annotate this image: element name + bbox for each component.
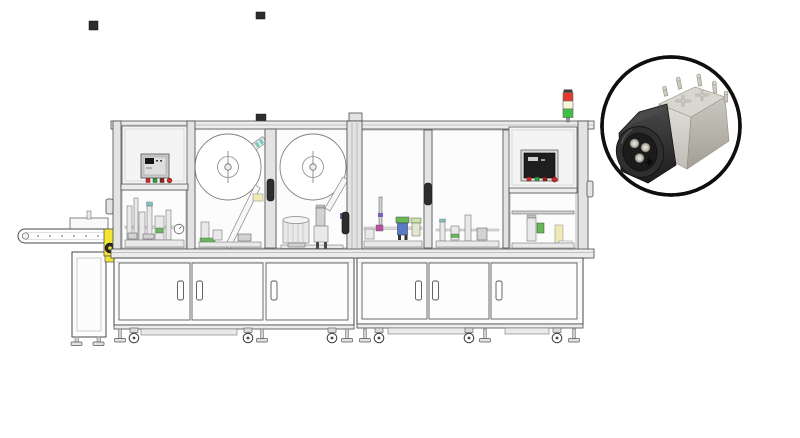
post-module-joint: [347, 121, 362, 258]
lower-cabinets: [114, 258, 583, 325]
door-handle: [178, 281, 184, 300]
caster-wheel: [464, 328, 474, 343]
stack-light-red: [563, 93, 573, 102]
hmi-left-button-1: [146, 179, 150, 183]
hmi-left-button-3: [160, 179, 164, 183]
leveling-foot: [257, 329, 268, 342]
hmi-right-button-4: [552, 177, 557, 182]
caster-wheel: [129, 328, 139, 343]
hmi-panel-left: [122, 126, 187, 184]
caster-wheel: [243, 328, 253, 343]
cabinet-door: [266, 263, 348, 320]
leveling-foot: [480, 329, 491, 342]
caster-wheel: [327, 328, 337, 343]
stack-light-yellow: [563, 101, 573, 109]
right-side-hinge: [587, 181, 593, 197]
outfeed-conveyor: [18, 211, 117, 346]
stack-light-cap: [564, 90, 573, 93]
conveyor-feet: [71, 337, 104, 346]
window-handle-3: [425, 183, 432, 205]
machine-base: [114, 324, 583, 343]
table-beam: [111, 249, 594, 258]
machine-illustration: [0, 0, 800, 438]
conveyor-end-roller: [22, 233, 28, 239]
small-component: [256, 12, 265, 19]
hmi-right-button-3: [543, 177, 547, 181]
door-handle: [271, 281, 277, 300]
gripper-unit-2: [411, 218, 421, 236]
conveyor-mount-plate: [70, 218, 108, 230]
post-5: [503, 130, 509, 248]
caster-wheel: [374, 328, 384, 343]
leveling-foot: [115, 329, 126, 342]
material-reel-1: [195, 134, 261, 200]
leveling-foot: [360, 329, 371, 342]
leveling-foot: [569, 329, 580, 342]
caster-wheel: [552, 328, 562, 343]
window-handle-2: [342, 212, 349, 234]
hmi-left-button-2: [153, 179, 157, 183]
cabinet-door: [491, 263, 577, 319]
hmi-right-button-2: [535, 177, 539, 181]
post-right: [578, 121, 588, 258]
door-handle: [433, 281, 439, 300]
conveyor-belt: [18, 229, 117, 243]
screenshot-root: [0, 0, 800, 438]
window-right-lower: [510, 193, 576, 248]
small-component: [89, 21, 98, 30]
left-side-hinge: [106, 199, 113, 214]
door-handle: [496, 281, 502, 300]
conveyor-sensor: [87, 211, 91, 219]
bowl-feeder: [283, 217, 309, 248]
window-handle-1: [267, 179, 274, 201]
hmi-panel-right: [509, 127, 577, 188]
hmi-right-screen: [524, 153, 555, 178]
product-inset: [602, 57, 740, 195]
stack-light: [563, 90, 573, 123]
hmi-left-button-4: [167, 178, 172, 183]
door-handle: [416, 281, 422, 300]
leveling-foot: [342, 329, 353, 342]
roof-junction-tab: [349, 113, 362, 121]
hmi-right-button-1: [527, 177, 531, 181]
door-handle: [197, 281, 203, 300]
stack-light-pole: [567, 118, 570, 123]
roof-fitting: [256, 114, 266, 121]
machine-diagram: [18, 12, 594, 346]
post-left: [113, 121, 121, 258]
stack-light-green: [563, 109, 573, 118]
